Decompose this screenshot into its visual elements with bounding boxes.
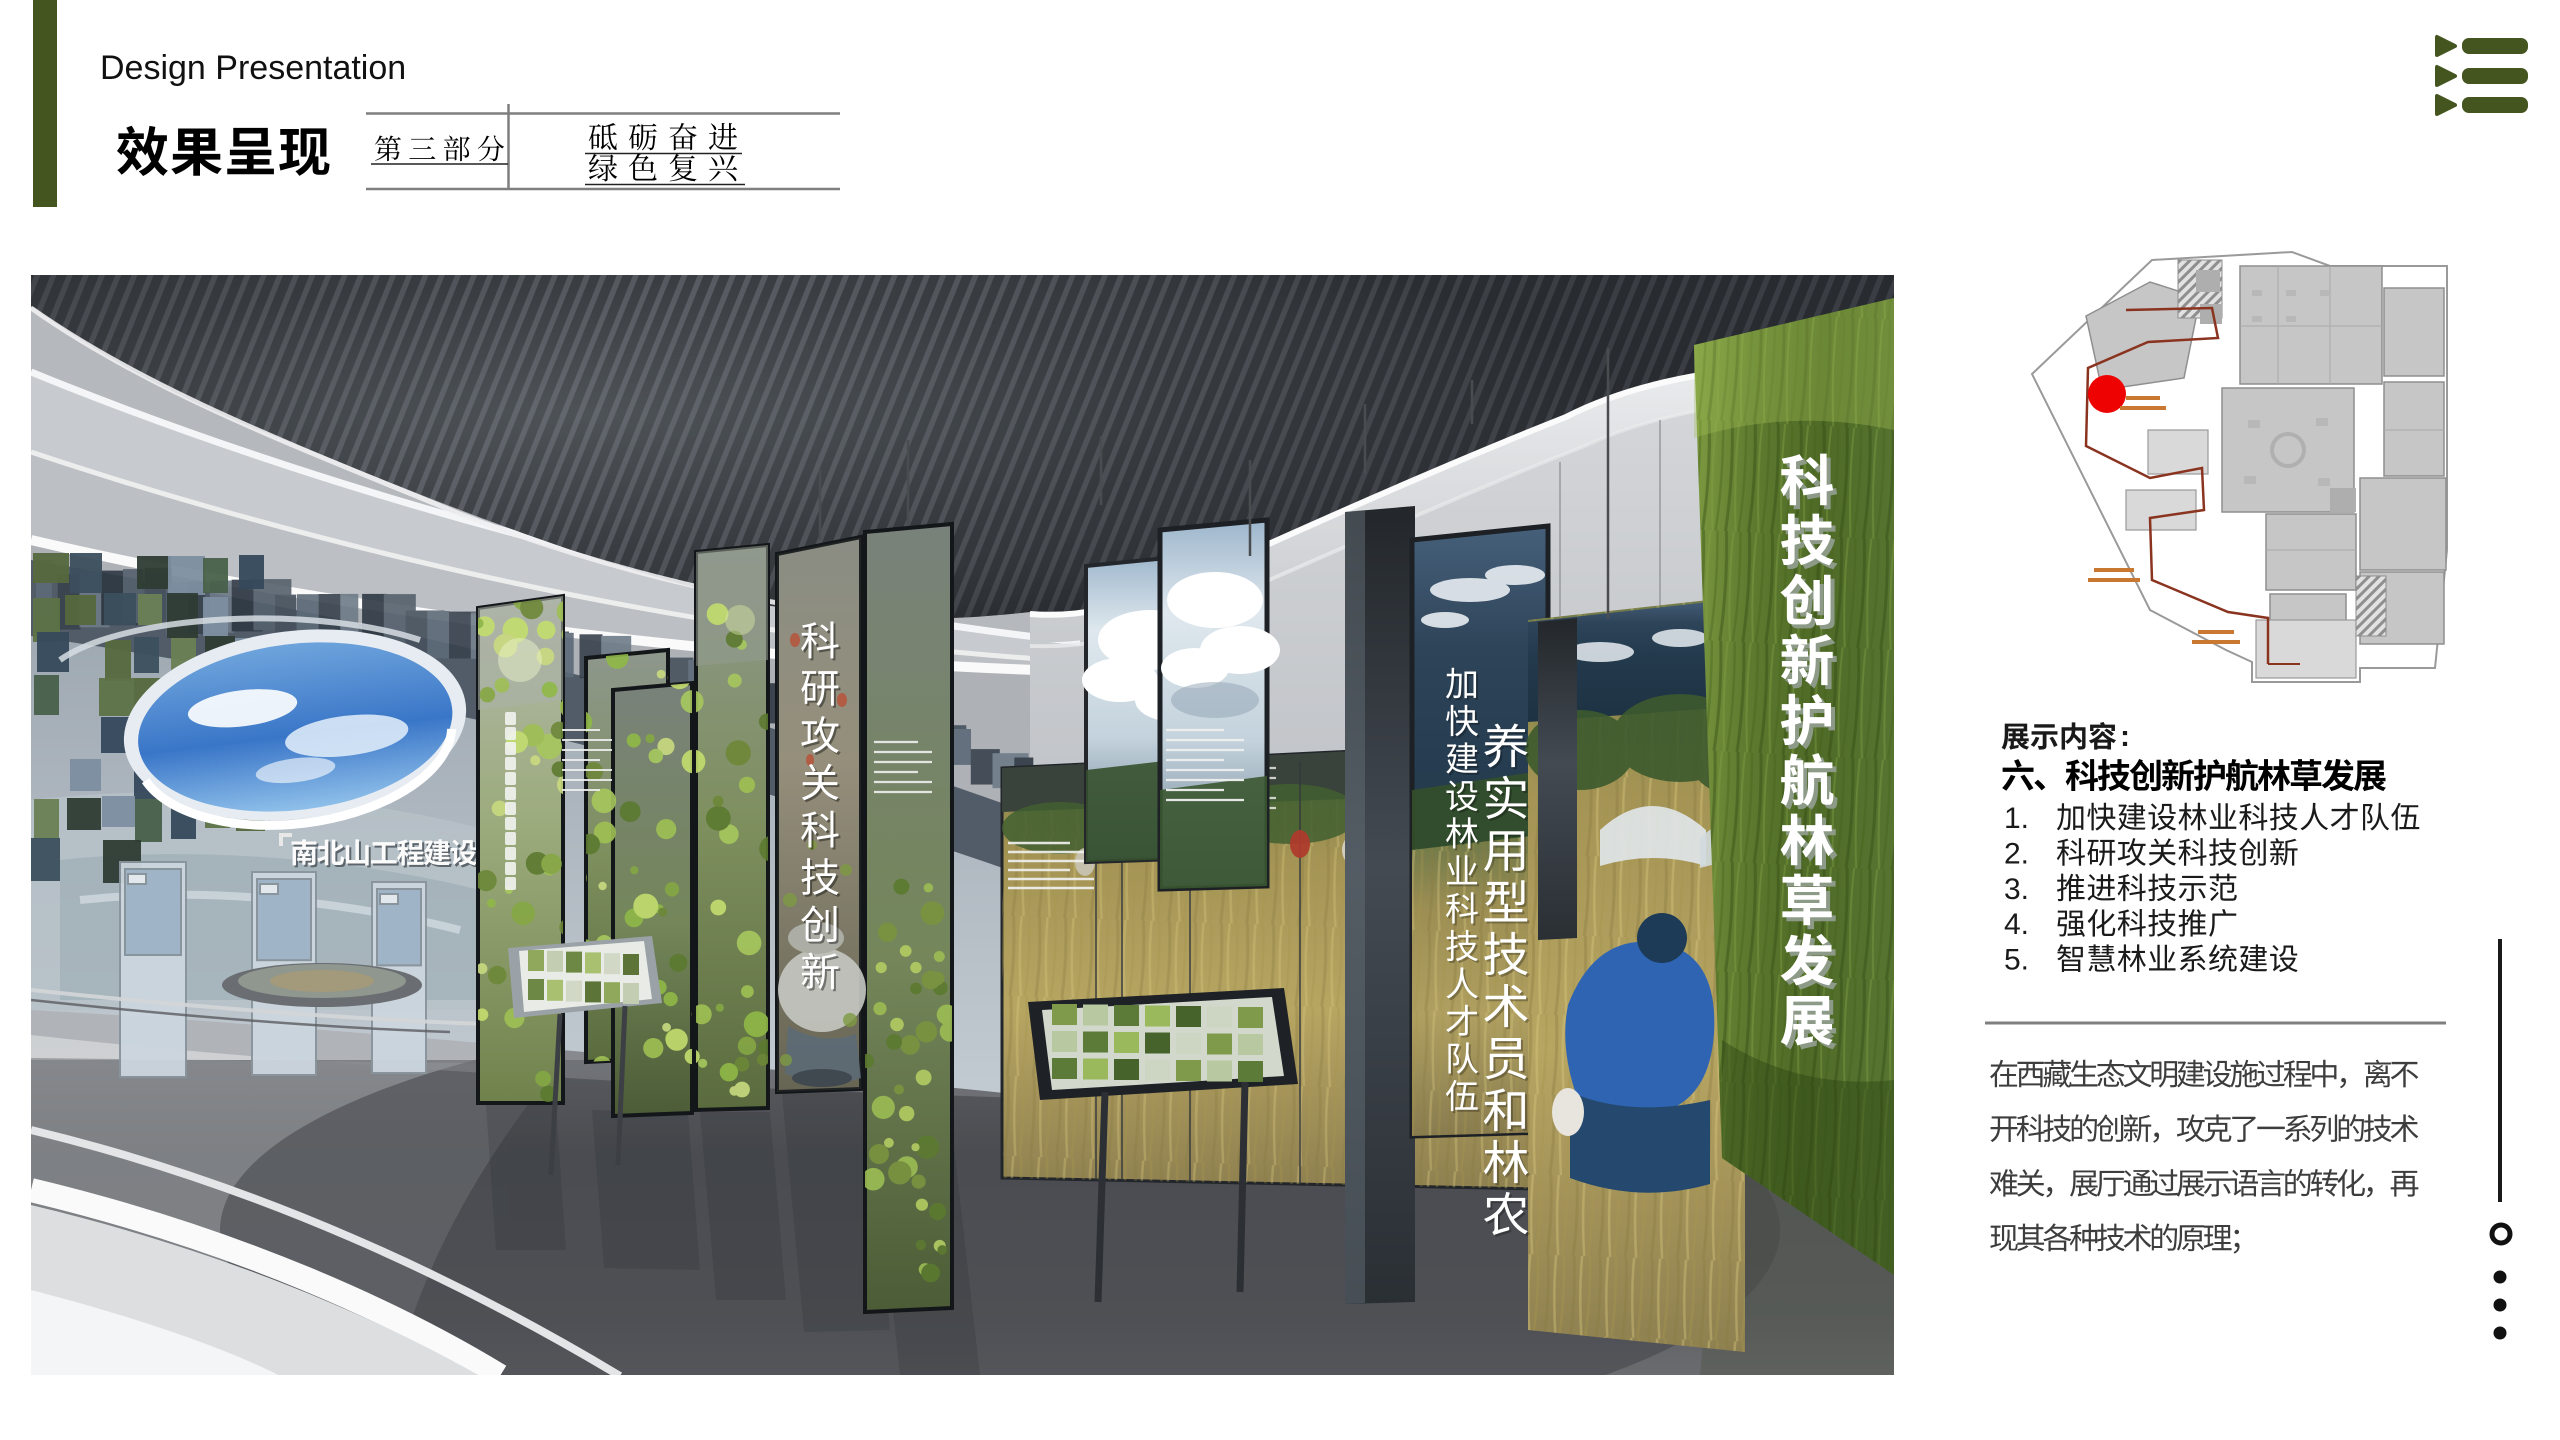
svg-text:Design Presentation: Design Presentation xyxy=(100,49,406,87)
svg-text:4.: 4. xyxy=(2004,908,2029,941)
svg-text:1.: 1. xyxy=(2004,802,2029,835)
svg-text:2.: 2. xyxy=(2004,837,2029,870)
svg-text:5.: 5. xyxy=(2004,944,2029,977)
svg-text::: : xyxy=(2120,720,2130,753)
svg-text:3.: 3. xyxy=(2004,873,2029,906)
